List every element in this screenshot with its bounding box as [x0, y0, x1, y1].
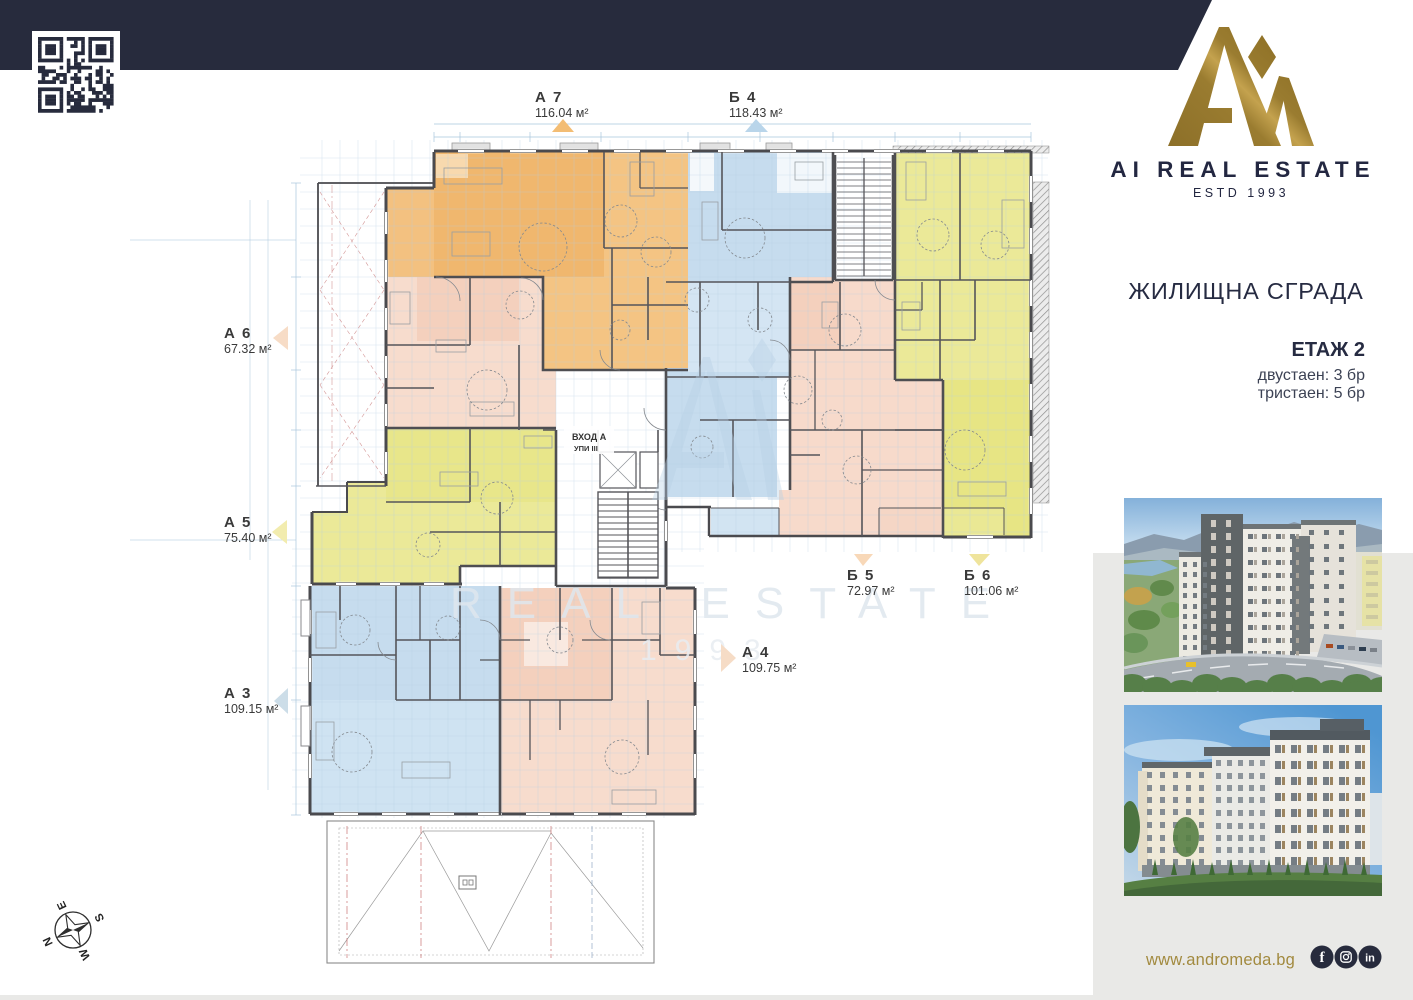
- svg-text:AI REAL ESTATE: AI REAL ESTATE: [1110, 157, 1375, 182]
- svg-text:W: W: [78, 946, 94, 961]
- svg-text:in: in: [1365, 953, 1375, 965]
- svg-text:E: E: [55, 899, 69, 911]
- svg-text:N: N: [41, 935, 55, 948]
- svg-text:ESTD 1993: ESTD 1993: [1193, 186, 1289, 200]
- svg-text:S: S: [93, 911, 107, 923]
